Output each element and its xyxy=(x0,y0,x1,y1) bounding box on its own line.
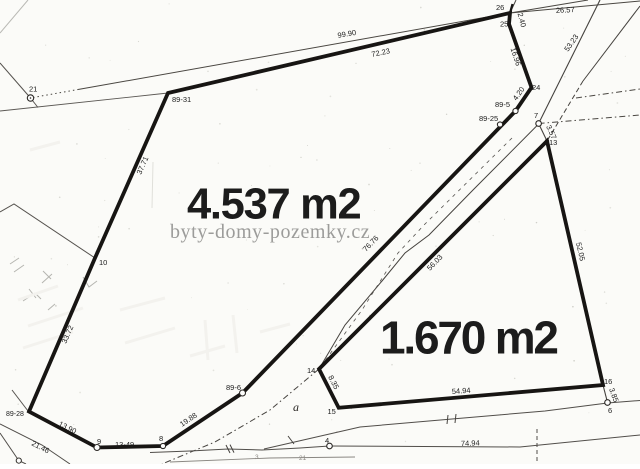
svg-text:10: 10 xyxy=(99,258,107,267)
svg-text:a: a xyxy=(293,400,299,414)
svg-text:26.57: 26.57 xyxy=(556,5,575,15)
svg-text:15: 15 xyxy=(328,407,336,416)
svg-text:1.670 m2: 1.670 m2 xyxy=(380,312,557,364)
svg-text:89-28: 89-28 xyxy=(6,411,24,418)
svg-text:21: 21 xyxy=(299,455,307,462)
svg-text:13-49: 13-49 xyxy=(115,440,134,449)
svg-text:26: 26 xyxy=(496,3,504,12)
svg-text:4: 4 xyxy=(325,436,329,445)
svg-text:16: 16 xyxy=(604,377,612,386)
svg-text:byty-domy-pozemky.cz: byty-domy-pozemky.cz xyxy=(170,221,370,243)
svg-text:21: 21 xyxy=(29,85,37,94)
svg-text:8: 8 xyxy=(159,434,163,443)
svg-text:7: 7 xyxy=(534,111,538,120)
svg-text:54.94: 54.94 xyxy=(452,386,471,396)
svg-text:9: 9 xyxy=(97,437,101,446)
svg-text:89-31: 89-31 xyxy=(172,95,191,104)
svg-text:24: 24 xyxy=(532,83,540,92)
svg-text:89-5: 89-5 xyxy=(495,100,510,109)
svg-text:14: 14 xyxy=(307,366,315,375)
svg-text:89-25: 89-25 xyxy=(479,114,498,123)
svg-text:25: 25 xyxy=(500,20,508,29)
svg-text:3: 3 xyxy=(255,454,259,461)
svg-text:13: 13 xyxy=(549,138,557,147)
svg-text:74.94: 74.94 xyxy=(461,438,480,448)
svg-text:6: 6 xyxy=(608,406,612,415)
svg-text:89-6: 89-6 xyxy=(226,383,241,392)
